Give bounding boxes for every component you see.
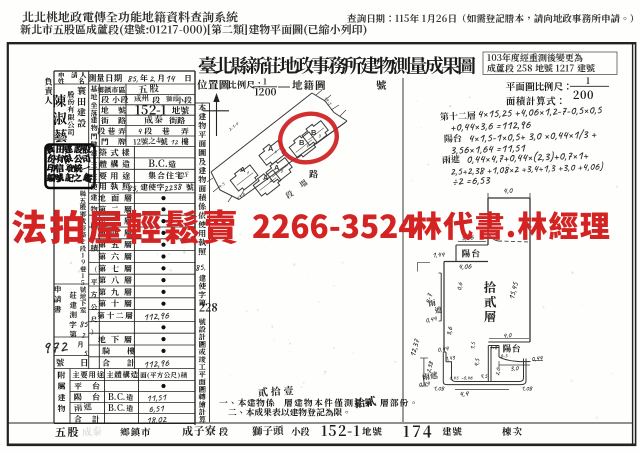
svg-text:第: 第 <box>98 299 107 310</box>
svg-text:八: 八 <box>111 275 120 286</box>
svg-text:地: 地 <box>98 334 106 345</box>
svg-text:第: 第 <box>98 287 107 298</box>
svg-text:152-1: 152-1 <box>321 421 361 441</box>
svg-text:B: B <box>299 139 305 148</box>
svg-text:層: 層 <box>123 334 132 345</box>
svg-text:位置圖: 位置圖 <box>197 78 230 93</box>
svg-text:用: 用 <box>98 182 107 193</box>
svg-text:日: 日 <box>80 357 88 369</box>
svg-text:執: 執 <box>110 182 119 193</box>
svg-text:主: 主 <box>90 160 97 170</box>
svg-text:12號之4: 12號之4 <box>133 135 162 148</box>
svg-text:平面圖比例尺：: 平面圖比例尺： <box>506 79 573 93</box>
svg-text:六: 六 <box>111 252 119 263</box>
svg-text:雨遮: 雨遮 <box>73 400 93 414</box>
svg-text:主體構造: 主體構造 <box>105 370 139 381</box>
svg-text:4,06: 4,06 <box>458 261 473 273</box>
svg-text:1,08: 1,08 <box>521 385 533 394</box>
svg-text:1,44: 1,44 <box>432 250 446 261</box>
svg-text:新北市五股區成蘆段(建號:01217-000)[第二類]建物: 新北市五股區成蘆段(建號:01217-000)[第二類]建物平面圖(已縮小列印) <box>20 22 367 38</box>
svg-text:二、本成果表以建物登記為限。: 二、本成果表以建物登記為限。 <box>228 406 351 419</box>
svg-text:層: 層 <box>123 275 132 286</box>
svg-text:85,: 85, <box>127 181 138 194</box>
svg-text:巷: 巷 <box>107 126 116 137</box>
svg-text:4,5: 4,5 <box>480 372 488 380</box>
svg-text:造: 造 <box>168 159 177 170</box>
svg-text:段: 段 <box>282 188 296 202</box>
svg-text:附: 附 <box>58 370 66 381</box>
svg-text:4,0: 4,0 <box>503 185 514 197</box>
svg-text:第: 第 <box>98 263 107 274</box>
svg-text:建: 建 <box>58 392 66 403</box>
svg-text:3: 3 <box>280 168 283 175</box>
svg-text:要: 要 <box>98 171 108 182</box>
svg-text:弄: 弄 <box>118 126 126 137</box>
svg-text:成泰: 成泰 <box>82 423 103 439</box>
svg-text:成子寮: 成子寮 <box>182 422 218 439</box>
svg-text:層部份。: 層部份。 <box>379 396 419 409</box>
svg-text:街路: 街路 <box>169 116 186 127</box>
svg-text:建號: 建號 <box>442 424 463 438</box>
svg-text:書: 書 <box>54 304 62 315</box>
svg-text:4,5: 4,5 <box>472 358 482 368</box>
svg-text:五股: 五股 <box>55 424 80 440</box>
svg-text:二: 二 <box>116 311 124 322</box>
svg-text:量: 量 <box>96 72 105 84</box>
svg-text:造: 造 <box>122 159 131 170</box>
svg-text:姓: 姓 <box>58 75 65 85</box>
svg-text:1,5: 1,5 <box>468 341 478 351</box>
svg-text:十: 十 <box>105 311 114 322</box>
svg-text:林代書.林經理: 林代書.林經理 <box>412 202 611 246</box>
svg-text:號: 號 <box>376 78 387 93</box>
svg-text:司: 司 <box>67 128 74 138</box>
svg-text:樓: 樓 <box>181 137 190 148</box>
svg-text:號: 號 <box>186 182 194 193</box>
svg-text:層: 層 <box>484 307 497 325</box>
svg-text:0,6: 0,6 <box>455 282 465 292</box>
svg-text:室: 室 <box>80 304 87 314</box>
svg-text:（: （ <box>91 264 98 274</box>
svg-text:牌: 牌 <box>118 136 126 147</box>
svg-text:2238: 2238 <box>162 179 183 195</box>
svg-text:174: 174 <box>403 421 434 442</box>
svg-text:下: 下 <box>110 334 119 345</box>
svg-text:請: 請 <box>71 70 78 80</box>
svg-text:B: B <box>311 129 317 138</box>
svg-text:設: 設 <box>77 116 86 129</box>
svg-text:85,: 85, <box>127 72 138 85</box>
svg-text:4,0: 4,0 <box>503 331 512 340</box>
svg-text:台: 台 <box>92 392 100 403</box>
svg-text:臺北縣新莊地政事務所建物測量成果圖: 臺北縣新莊地政事務所建物測量成果圖 <box>198 52 476 79</box>
svg-text:2266-3524: 2266-3524 <box>252 202 418 248</box>
svg-text:物: 物 <box>58 404 67 415</box>
svg-text:÷2 =6,53: ÷2 =6,53 <box>452 172 492 189</box>
svg-text:弄: 弄 <box>181 126 189 137</box>
svg-text:鄉鎮市: 鄉鎮市 <box>120 425 152 439</box>
svg-text:獅子頭: 獅子頭 <box>252 423 285 439</box>
svg-text:3,6: 3,6 <box>444 325 456 337</box>
svg-text:1,08: 1,08 <box>433 385 445 394</box>
svg-text:號: 號 <box>160 137 168 148</box>
svg-text:段: 段 <box>97 126 105 137</box>
svg-text:小段: 小段 <box>111 95 129 106</box>
svg-text:228: 228 <box>199 301 218 316</box>
svg-text:層: 層 <box>125 311 133 322</box>
svg-text:第: 第 <box>98 275 107 286</box>
svg-text:12,37: 12,37 <box>406 337 422 358</box>
svg-text:平: 平 <box>73 381 82 392</box>
svg-text:）: ） <box>91 327 98 337</box>
svg-text:2,0: 2,0 <box>493 367 503 377</box>
svg-text:1200: 1200 <box>254 84 278 99</box>
svg-text:陽台: 陽台 <box>462 248 481 260</box>
svg-text:七: 七 <box>111 263 120 274</box>
svg-text:建: 建 <box>89 149 98 159</box>
svg-text:1-0: 1-0 <box>489 343 499 352</box>
svg-text:期: 期 <box>113 72 123 84</box>
svg-text:段: 段 <box>218 424 229 438</box>
svg-text:3: 3 <box>318 133 321 140</box>
svg-text:第: 第 <box>98 252 107 263</box>
svg-text:112,96: 112,96 <box>143 309 171 324</box>
svg-text:九: 九 <box>111 287 120 298</box>
svg-text:成泰: 成泰 <box>142 112 164 127</box>
svg-text:層: 層 <box>123 263 132 274</box>
svg-text:築: 築 <box>99 148 108 159</box>
svg-text:4: 4 <box>274 149 278 156</box>
svg-text:小段: 小段 <box>290 424 310 438</box>
svg-text:路: 路 <box>117 116 126 127</box>
svg-text:計: 計 <box>127 358 135 369</box>
svg-text:主要用途: 主要用途 <box>71 370 105 381</box>
svg-text:造: 造 <box>125 404 134 414</box>
svg-text:主: 主 <box>90 172 97 182</box>
svg-text:3,0: 3,0 <box>510 364 519 374</box>
svg-text:0,44: 0,44 <box>530 354 544 365</box>
svg-text:面(平方公尺)積: 面(平方公尺)積 <box>140 370 187 380</box>
svg-text:十: 十 <box>111 299 120 310</box>
svg-text:85,: 85, <box>194 261 206 274</box>
svg-text:1: 1 <box>586 75 590 87</box>
svg-text:樓: 樓 <box>127 346 136 357</box>
svg-text:樣: 樣 <box>122 148 131 159</box>
svg-text:造: 造 <box>125 393 134 403</box>
svg-text:建使字: 建使字 <box>140 182 165 193</box>
svg-text:台: 台 <box>92 381 100 392</box>
svg-text:號: 號 <box>56 357 65 369</box>
svg-text:使: 使 <box>90 183 98 193</box>
svg-text:街: 街 <box>101 116 109 127</box>
svg-text:構: 構 <box>110 159 119 170</box>
svg-text:4-5: 4-5 <box>217 180 227 190</box>
svg-text:14: 14 <box>165 73 176 86</box>
svg-text:屬: 屬 <box>57 381 66 392</box>
svg-text:騎: 騎 <box>102 346 111 357</box>
svg-text:法拍屋輕鬆賣: 法拍屋輕鬆賣 <box>11 200 240 252</box>
svg-text:第: 第 <box>96 311 105 322</box>
svg-text:200: 200 <box>573 87 594 103</box>
svg-text:用: 用 <box>109 171 118 182</box>
svg-text:層: 層 <box>123 299 132 310</box>
svg-text:日: 日 <box>184 73 192 84</box>
svg-text:B.C.: B.C. <box>148 156 168 170</box>
svg-text:第: 第 <box>69 329 77 340</box>
svg-text:層: 層 <box>123 252 132 263</box>
svg-text:地號: 地號 <box>361 424 383 438</box>
svg-text:層: 層 <box>123 287 132 298</box>
svg-text:1: 1 <box>246 170 249 177</box>
svg-text:成蘆段 258 地號 1217 建號: 成蘆段 258 地號 1217 建號 <box>486 62 595 75</box>
svg-text:查詢日期：115年 1月26日（如需登記謄本，請向地政事務所: 查詢日期：115年 1月26日（如需登記謄本，請向地政事務所申請。） <box>346 11 639 25</box>
svg-text:0,45: 0,45 <box>449 374 459 382</box>
svg-text:巷: 巷 <box>161 126 170 137</box>
svg-text:棟次: 棟次 <box>502 424 523 438</box>
svg-text:段: 段 <box>101 95 109 106</box>
svg-text:方: 方 <box>91 289 98 299</box>
svg-text:拾貳: 拾貳 <box>353 393 378 412</box>
svg-text:2-1-4: 2-1-4 <box>227 120 241 133</box>
svg-text:12: 12 <box>170 137 179 148</box>
svg-text:-0,46: -0,46 <box>461 374 474 382</box>
svg-text:式: 式 <box>110 148 118 159</box>
svg-text:4: 4 <box>137 125 142 137</box>
svg-text:門: 門 <box>101 136 109 147</box>
svg-text:平: 平 <box>91 277 98 287</box>
svg-text:路: 路 <box>309 167 319 181</box>
svg-text:體: 體 <box>98 159 108 170</box>
svg-text:日: 日 <box>105 72 114 84</box>
svg-text:測: 測 <box>88 72 97 84</box>
svg-text:14-5: 14-5 <box>322 95 334 107</box>
svg-text:B.C.: B.C. <box>108 402 126 414</box>
svg-text:15,45: 15,45 <box>505 280 521 301</box>
svg-text:合: 合 <box>102 358 111 369</box>
